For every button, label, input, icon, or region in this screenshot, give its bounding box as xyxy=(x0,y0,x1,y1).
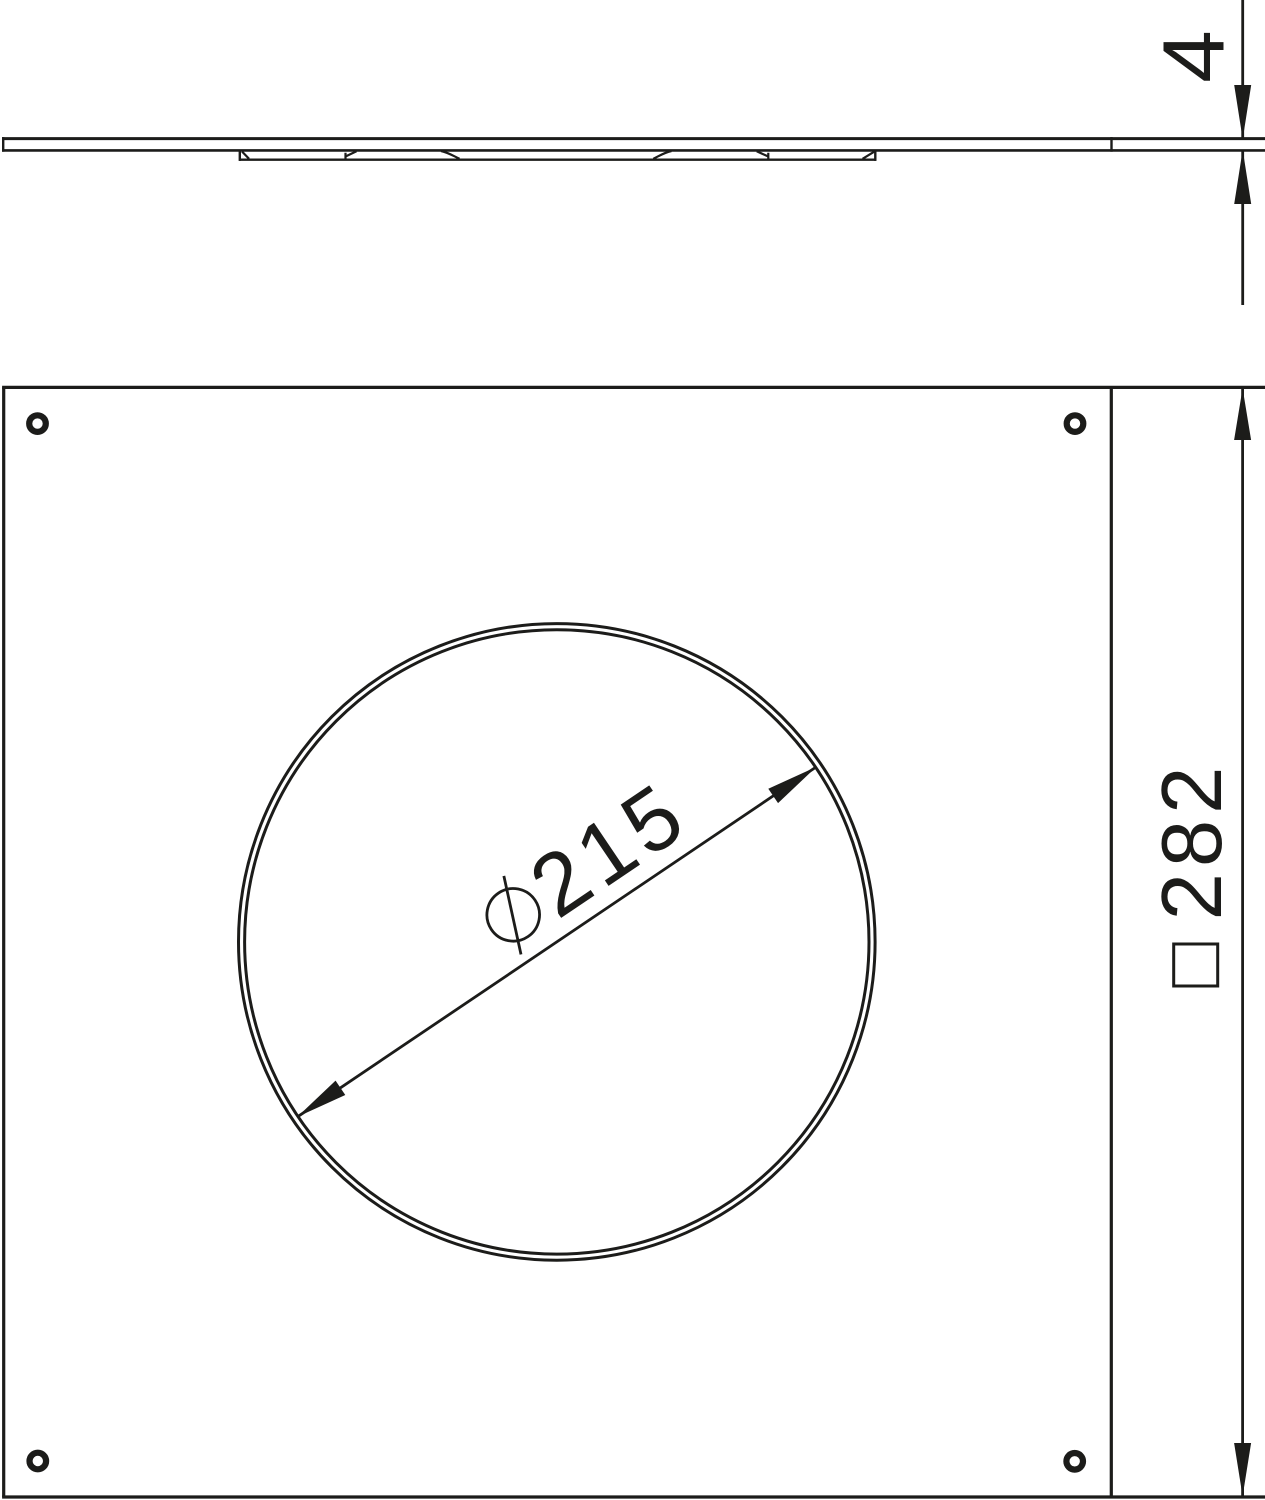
svg-text:215: 215 xyxy=(513,762,705,936)
svg-text:4: 4 xyxy=(1146,30,1243,83)
svg-text:282: 282 xyxy=(1145,761,1240,921)
